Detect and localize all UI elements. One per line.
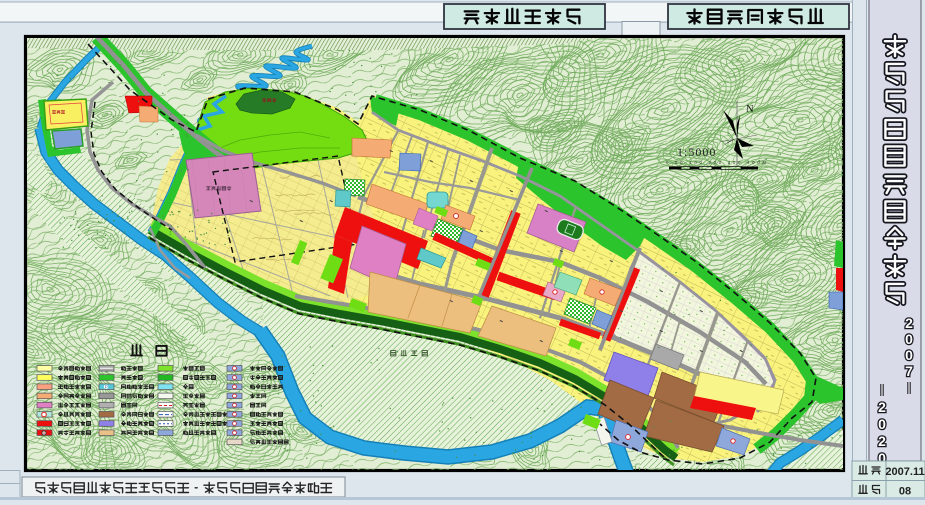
svg-text:2: 2: [905, 315, 913, 331]
svg-text:0: 0: [905, 331, 913, 347]
svg-text:7: 7: [905, 363, 913, 379]
svg-text:2: 2: [878, 433, 886, 449]
svg-text:2: 2: [878, 399, 886, 415]
svg-text:N: N: [746, 104, 754, 115]
svg-text:P: P: [105, 385, 108, 390]
svg-text:08: 08: [899, 486, 911, 498]
svg-text:0: 0: [905, 347, 913, 363]
svg-text:1:5000: 1:5000: [677, 145, 716, 159]
svg-text:2007.11: 2007.11: [885, 466, 924, 478]
svg-text:0: 0: [878, 416, 886, 432]
